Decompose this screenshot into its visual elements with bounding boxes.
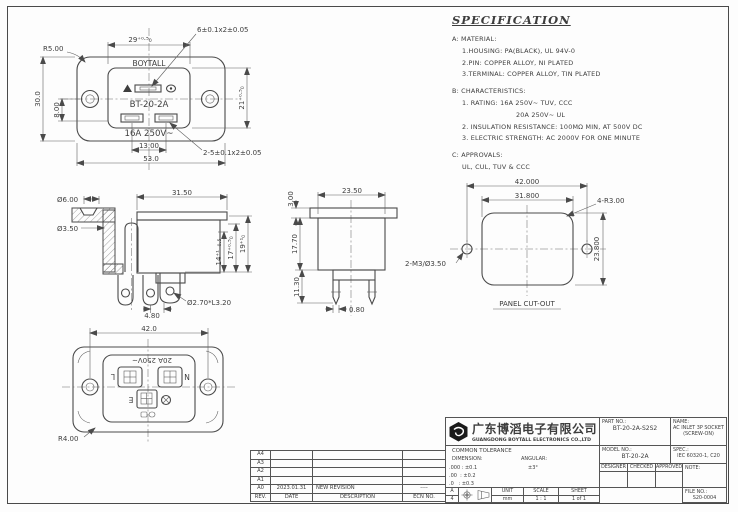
rev-cell: A0 [251,485,271,494]
table-row: A3 [251,459,446,468]
rev-cell: A1 [251,476,271,485]
name-value-line2: (SCREW-ON) [671,431,726,437]
unit-value: mm [492,496,523,502]
part-no-value: BT-20-2A-S2S2 [600,425,670,433]
spec-line: B: CHARACTERISTICS: [452,86,732,98]
scale-label: SCALE [524,488,558,496]
model-no-label: MODEL NO.: [600,446,670,453]
terminal-e-label: E [128,395,133,404]
front-brand-text: BOYTALL [133,59,167,68]
dim-bottom-slots: 2-5±0.1x2±0.05 [203,149,261,157]
company-name-cn: 广东博滔电子有限公司 [472,420,597,437]
bottom-view: 20A 250V~ L N E 42.0 R4. [58,325,235,444]
rev-cell [313,476,403,485]
dim-pin-length: 11.30 [293,277,301,297]
file-no-value: S20-0004 [683,495,726,501]
dim-flange-thickness: 3.00 [287,191,295,207]
dim-bottom-hole-spacing: 42.0 [141,325,157,333]
file-no-label: FILE NO.: [683,488,726,495]
projection-cell [458,487,492,503]
dim-depth-17: 17⁺⁰·⁵₀ [227,236,235,259]
part-no-label: PART NO.: [600,418,670,425]
spec-value: IEC 60320-1, C20 [671,453,726,459]
unit-label: UNIT [492,488,523,496]
bottom-rating-text: 20A 250V~ [132,356,172,364]
dim-cutout-height: 23.800 [593,237,601,262]
rev-cell [271,476,313,485]
rev-cell [271,459,313,468]
designer-label: DESIGNER [600,464,627,472]
dim-corner-radius: R5.00 [43,45,63,53]
dim-side-body-width: 31.50 [172,189,192,197]
table-header-row: REV. DATE DESCRIPTION ECN NO. [251,493,446,502]
revision-table: A4 A3 A2 A1 A0 2023.01.31 NEW REVISION -… [250,450,446,502]
model-no-value: BT-20-2A [600,453,670,461]
dim-pin-thickness: 0.80 [349,306,365,314]
scale-value: 1 : 1 [524,496,558,502]
rev-cell [403,459,446,468]
rev-header-cell: ECN NO. [403,493,446,502]
checked-label: CHECKED [628,464,655,472]
rev-cell [403,476,446,485]
panel-cutout-view: 42.000 31.800 4-R3.00 23.800 2-M3/Ø3.50 … [405,178,624,309]
top-slot-icon [135,85,161,92]
dim-height: 30.0 [34,91,42,107]
checked-cell: CHECKED [627,463,656,488]
file-no-cell: FILE NO.: S20-0004 [682,487,727,503]
front-view: BOYTALL BT-20-2A 16A 250V~ R5.00 29⁺⁰·⁵₀… [34,26,261,170]
indicator-icon [167,85,176,92]
dim-cutout-corner-radius: 4-R3.00 [597,197,624,205]
angular-label: ANGULAR: [521,456,547,464]
approved-label: APPROVED [656,464,682,472]
designer-cell: DESIGNER [599,463,628,488]
spec-line: UL, CUL, TUV & CCC [452,162,732,174]
table-row: A0 2023.01.31 NEW REVISION ---- [251,485,446,494]
spec-line: 1. RATING: 16A 250V~ TUV, CCC [452,98,732,110]
side-view: Ø6.00 Ø3.50 31.50 14⁺¹₋₀.₅ 17⁺⁰·⁵₀ 19⁺¹₀… [57,189,252,320]
engineering-drawing-sheet: { "colors": { "line": "#4a4a4a", "text":… [0,0,738,512]
front-model-text: BT-20-2A [130,100,169,110]
specification-block: SPECIFICATION A: MATERIAL: 1.HOUSING: PA… [452,13,732,174]
rev-header-cell: DATE [271,493,313,502]
tolerance-title: COMMON TOLERANCE [452,448,512,456]
sheet-value: 1 of 1 [559,496,599,502]
table-row: A2 [251,468,446,477]
spec-label: SPEC.: [671,446,726,453]
sheet-size-cell: A 4 [445,487,459,503]
dim-hole-offset: 8.00 [53,102,61,118]
sheet-cell: SHEET 1 of 1 [558,487,600,503]
spec-line: 3. ELECTRIC STRENGTH: AC 2000V FOR ONE M… [452,133,732,145]
dim-mounting-holes: 2-M3/Ø3.50 [405,260,446,268]
tolerance-row: .00 : ±0.2 [449,473,476,481]
terminal-l-label: L [110,372,115,381]
dim-top-slot: 6±0.1x2±0.05 [197,26,249,34]
dim-face-width: 29⁺⁰·⁵₀ [128,36,151,44]
dimension-label: DIMENSION: [452,456,483,464]
terminal-n-icon [158,367,182,387]
pin-slot-right-icon [155,114,177,122]
dim-bottom-corner-radius: R4.00 [58,435,78,443]
terminal-l-icon [118,367,142,387]
dim-depth-19: 19⁺¹₀ [239,235,247,253]
spec-line: C: APPROVALS: [452,150,732,162]
dim-body-depth: 17.70 [291,234,299,254]
specification-title: SPECIFICATION [452,13,732,27]
part-no-cell: PART NO.: BT-20-2A-S2S2 [599,417,671,446]
rev-cell: ---- [403,485,446,494]
warning-triangle-icon [123,85,132,93]
spec-line: 3.TERMINAL: COPPER ALLOY, TIN PLATED [452,69,732,81]
dim-width: 53.0 [143,155,159,163]
dim-terminal-hole: Ø2.70*L3.20 [187,299,231,307]
rear-view: 3.00 23.50 17.70 11.30 0.80 [287,187,397,316]
company-logo [448,421,469,442]
dim-face-height: 21⁺⁰·⁵₀ [238,86,246,109]
name-cell: NAME: AC INLET 3P SOCKET (SCREW-ON) [670,417,727,446]
name-label: NAME: [671,418,726,425]
dim-depth-14: 14⁺¹₋₀.₅ [215,238,223,265]
rev-cell [403,451,446,460]
company-cell: 广东博滔电子有限公司 GUANGDONG BOYTALL ELECTRONICS… [445,417,600,446]
dim-cutout-width: 31.800 [515,192,540,200]
third-angle-projection-icon [459,488,491,502]
table-row: A1 [251,476,446,485]
spec-cell: SPEC.: IEC 60320-1, C20 [670,445,727,464]
unit-cell: UNIT mm [491,487,524,503]
tolerance-cell: COMMON TOLERANCE DIMENSION: ANGULAR: .00… [445,445,600,488]
spec-line: 1.HOUSING: PA(BLACK), UL 94V-0 [452,46,732,58]
dim-rear-body-width: 23.50 [342,187,362,195]
note-label: NOTE: [683,464,726,471]
rev-cell: A3 [251,459,271,468]
scale-cell: SCALE 1 : 1 [523,487,559,503]
tolerance-row: .000 : ±0.1 [449,465,477,473]
dim-panel-hole-spacing: 42.000 [515,178,540,186]
table-row: A4 [251,451,446,460]
ground-screw-icon [162,396,171,405]
approved-cell: APPROVED [655,463,683,488]
rev-cell: 2023.01.31 [271,485,313,494]
rev-cell: A2 [251,468,271,477]
company-name-en: GUANGDONG BOYTALL ELECTRONICS CO.,LTD [472,438,597,443]
rev-cell [271,468,313,477]
angular-value: ±3° [528,465,538,473]
panel-cutout-caption: PANEL CUT-OUT [499,300,555,308]
terminal-e-icon [137,390,157,408]
sheet-size-number: 4 [446,496,458,502]
rev-cell [403,468,446,477]
spec-line: 2. INSULATION RESISTANCE: 100MΩ MIN, AT … [452,122,732,134]
note-cell: NOTE: [682,463,727,488]
spec-line: 20A 250V~ UL [452,110,732,122]
rev-cell [271,451,313,460]
dim-flange-hole-id: Ø3.50 [57,225,78,233]
rev-cell [313,468,403,477]
rev-cell: NEW REVISION [313,485,403,494]
sheet-label: SHEET [559,488,599,496]
spec-line: A: MATERIAL: [452,34,732,46]
sheet-size-letter: A [446,488,458,496]
dim-terminal-pitch: 4.80 [144,312,160,320]
model-no-cell: MODEL NO.: BT-20-2A [599,445,671,464]
pin-slot-left-icon [121,114,143,122]
dim-flange-hole-od: Ø6.00 [57,196,78,204]
rev-cell [313,459,403,468]
terminal-n-label: N [184,372,190,381]
rev-cell [313,451,403,460]
rev-header-cell: DESCRIPTION [313,493,403,502]
spec-line: 2.PIN: COPPER ALLOY, NI PLATED [452,58,732,70]
rev-cell: A4 [251,451,271,460]
dim-slot-spacing: 13.00 [139,142,159,150]
rev-header-cell: REV. [251,493,271,502]
